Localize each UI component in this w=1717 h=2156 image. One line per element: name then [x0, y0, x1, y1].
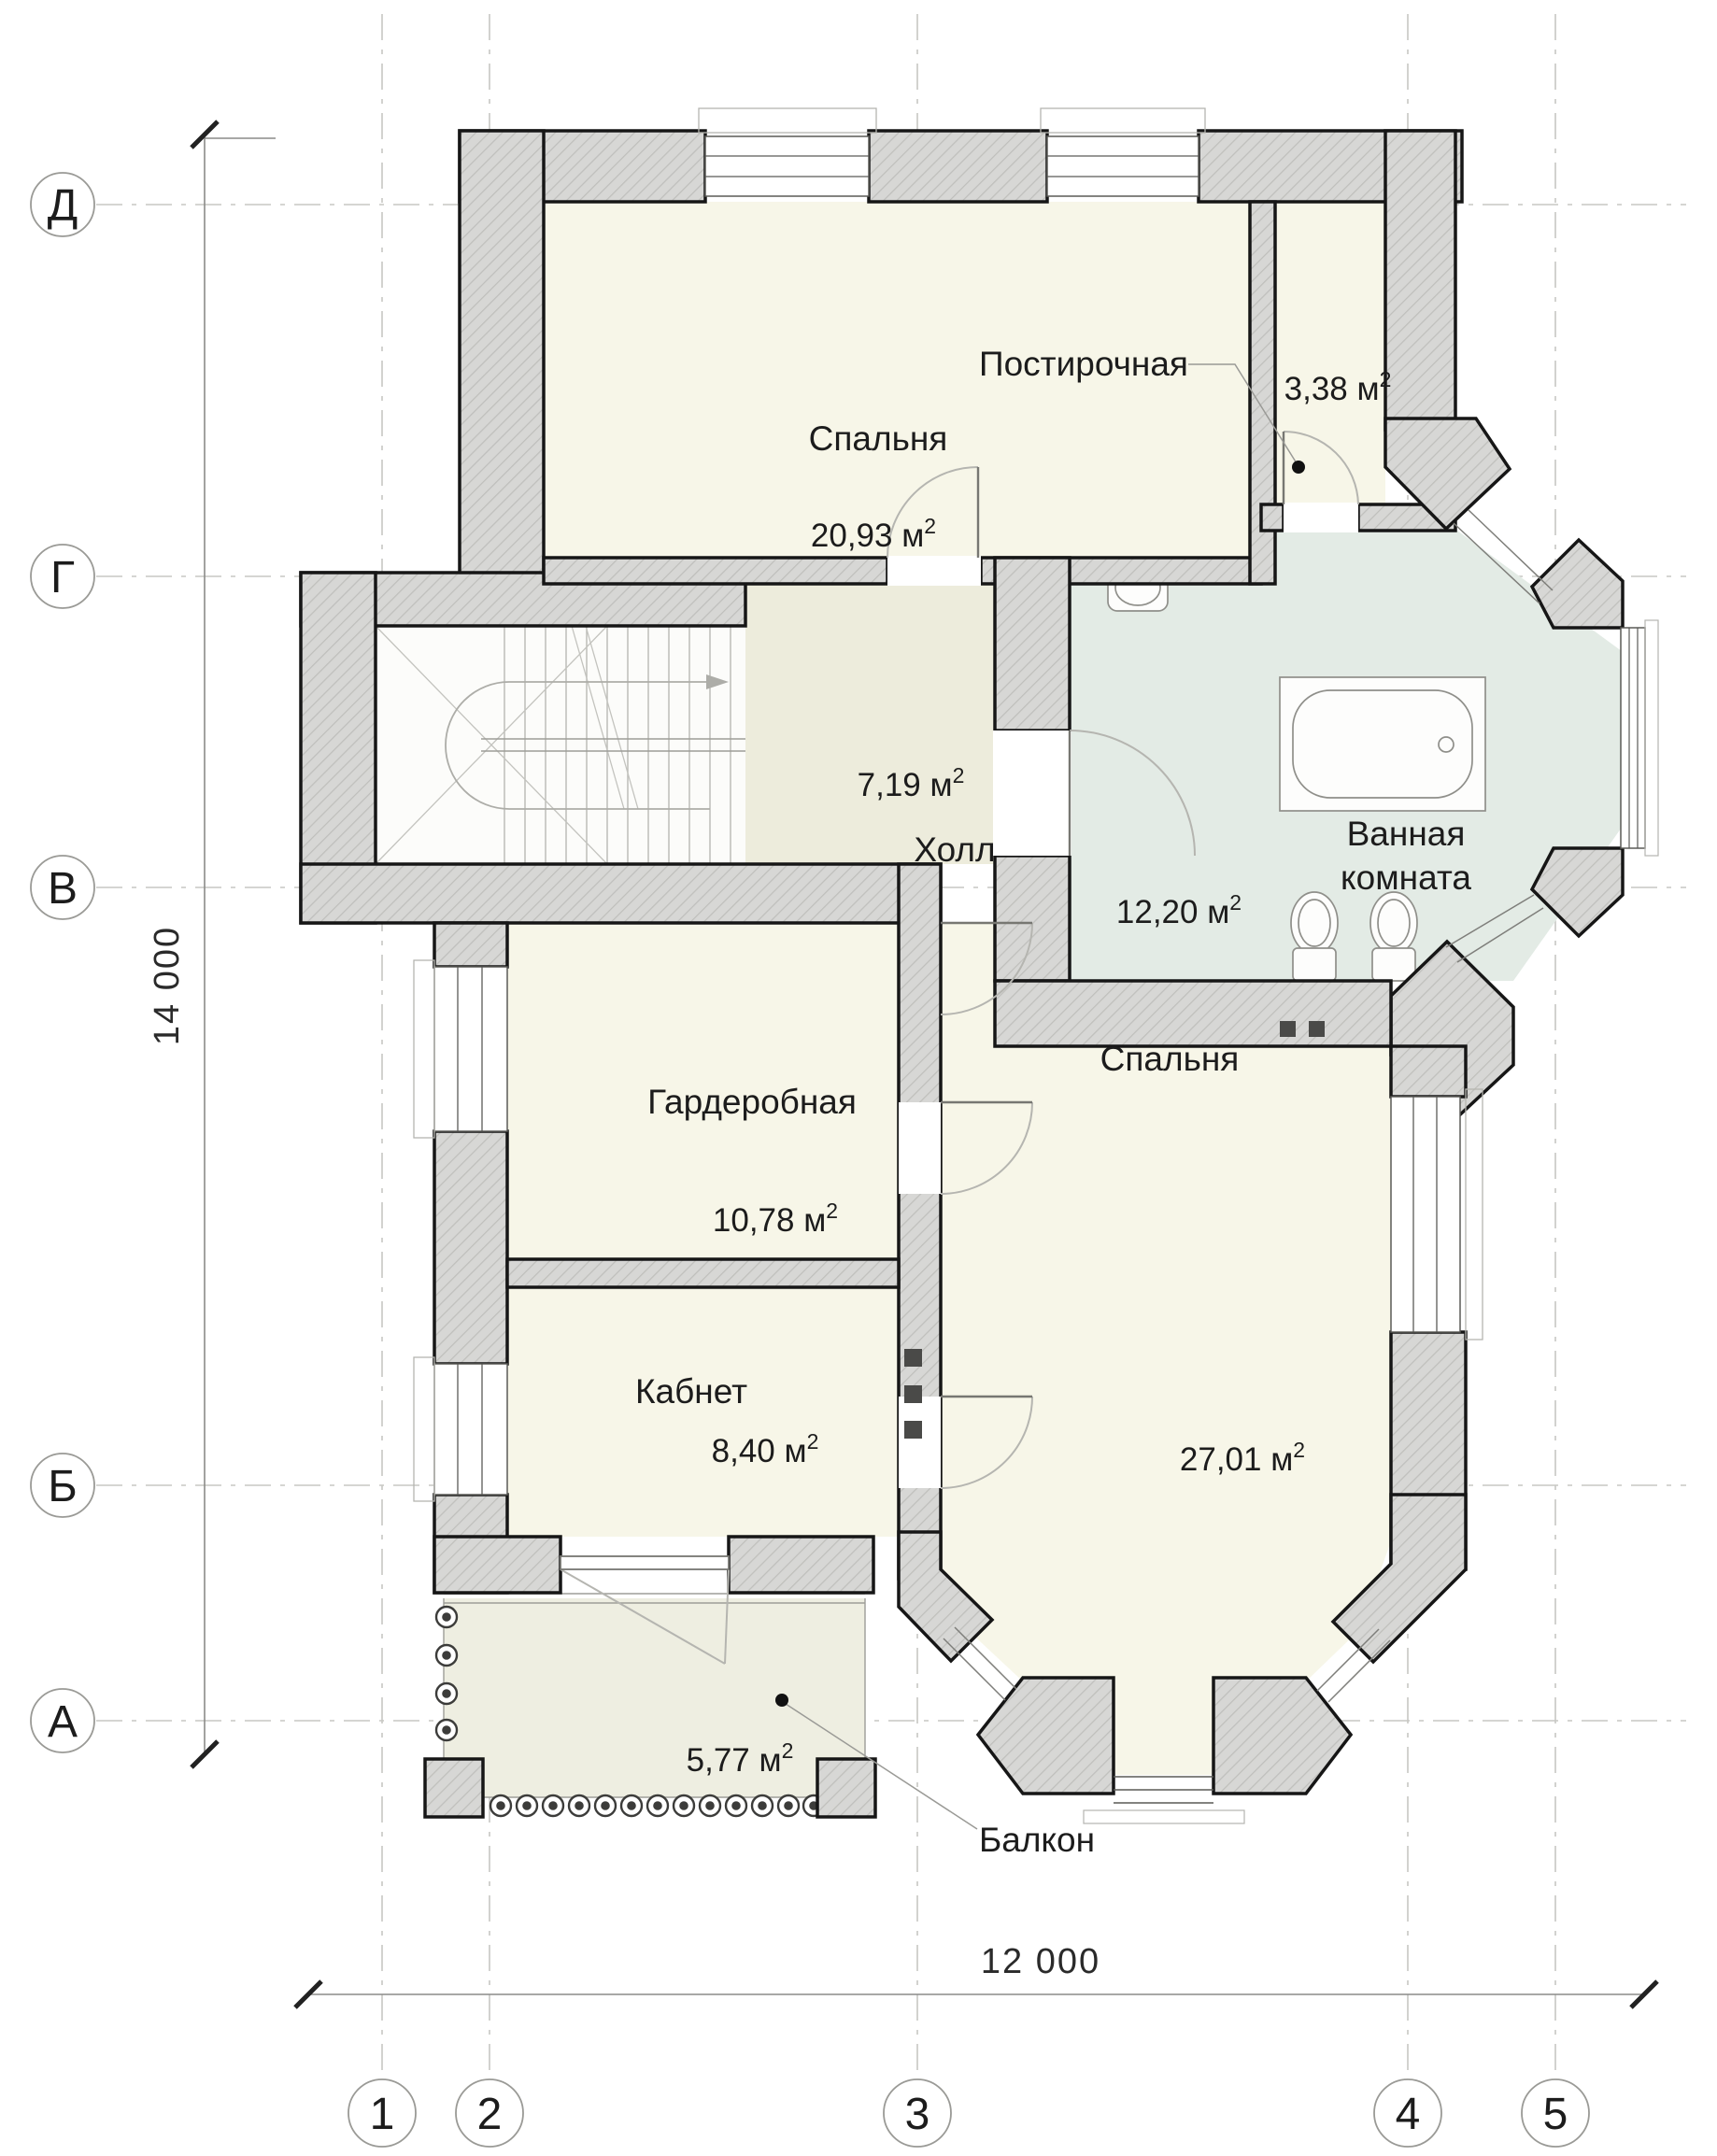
- bedroom-2-name: Спальня: [1100, 1040, 1240, 1078]
- laundry-floor: [1275, 202, 1385, 504]
- wardrobe-name: Гардеробная: [647, 1083, 857, 1121]
- balcony-floor: [444, 1598, 865, 1797]
- office-name: Кабнет: [635, 1372, 747, 1411]
- bedroom-1-area: 20,93 м2: [811, 514, 936, 554]
- bedroom-2-bay-floor: [1107, 1663, 1219, 1775]
- axis-row-a: А: [48, 1697, 78, 1747]
- bedroom-2-area: 27,01 м2: [1180, 1438, 1305, 1478]
- bathtub-icon: [1280, 677, 1485, 811]
- axis-col-3: 3: [905, 2090, 930, 2139]
- laundry-name: Постирочная: [979, 345, 1188, 383]
- hall-name: Холл: [914, 830, 995, 869]
- axis-col-4: 4: [1396, 2090, 1421, 2139]
- dimension-vertical: 14 000: [148, 926, 187, 1045]
- office-floor: [507, 1287, 899, 1537]
- axis-row-v: В: [48, 864, 78, 914]
- hall-area: 7,19 м2: [858, 763, 965, 803]
- bathroom-name-line1: Ванная: [1347, 815, 1466, 853]
- laundry-area: 3,38 м2: [1284, 367, 1392, 407]
- wardrobe-area: 10,78 м2: [713, 1199, 838, 1239]
- window-wardrobe: [414, 960, 507, 1138]
- window-top-2: [1041, 108, 1205, 196]
- axis-col-5: 5: [1543, 2090, 1568, 2139]
- axis-col-1: 1: [370, 2090, 395, 2139]
- floor-plan-page: 14 000 12 000: [0, 0, 1717, 2156]
- office-area: 8,40 м2: [712, 1429, 819, 1469]
- laundry-leader-dot: [1292, 461, 1305, 474]
- balcony-name: Балкон: [979, 1821, 1095, 1859]
- axis-row-g: Г: [50, 553, 75, 603]
- axis-row-d: Д: [48, 181, 78, 231]
- bidet-icon: [1370, 892, 1417, 981]
- window-office: [414, 1357, 507, 1501]
- balcony-leader-dot: [775, 1694, 788, 1707]
- hall-floor: [745, 584, 995, 864]
- window-bay-bathroom: [1621, 620, 1658, 856]
- dimension-horizontal: 12 000: [981, 1942, 1100, 1981]
- balcony-door-leaf: [561, 1556, 729, 1569]
- floor-plan-drawing: 14 000 12 000: [0, 0, 1717, 2156]
- window-bedroom-2: [1391, 1089, 1483, 1340]
- bathroom-name-line2: комната: [1341, 858, 1471, 897]
- bathroom-area: 12,20 м2: [1116, 890, 1242, 930]
- balcony-area: 5,77 м2: [687, 1738, 794, 1779]
- axis-row-b: Б: [48, 1462, 78, 1511]
- axis-col-2: 2: [477, 2090, 503, 2139]
- toilet-icon: [1291, 892, 1338, 981]
- bedroom-1-name: Спальня: [809, 419, 948, 458]
- window-top-1: [699, 108, 876, 196]
